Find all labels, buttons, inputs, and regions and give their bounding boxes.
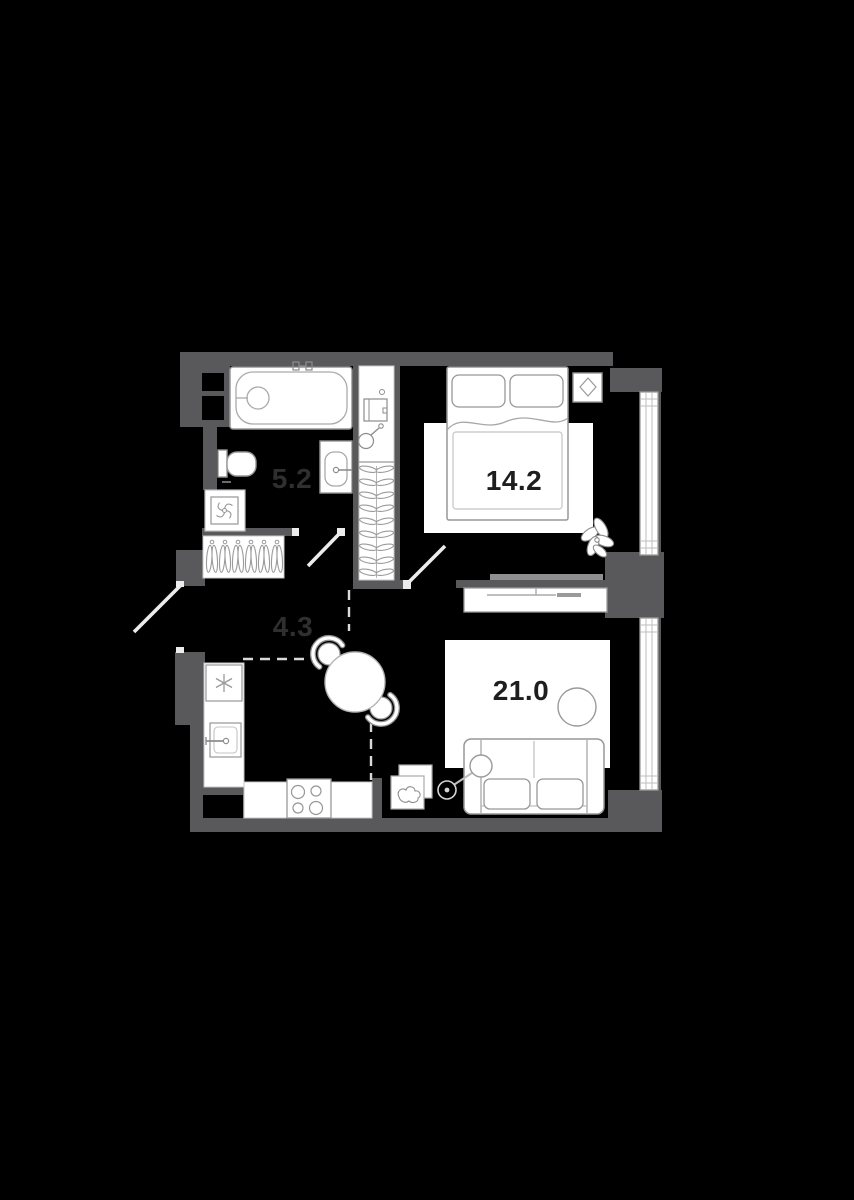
wall-wardrobe-bottom [353, 580, 403, 589]
bathroom-area-label: 5.2 [272, 463, 312, 494]
wardrobe-hangers-icon [359, 465, 394, 578]
shaft-inset [203, 795, 243, 818]
wall-top-band [228, 352, 613, 366]
nightstand-icon [573, 373, 602, 402]
tv-console-icon [464, 588, 607, 612]
shaft-inset [202, 373, 224, 391]
window-bedroom [640, 392, 658, 555]
toilet-icon [218, 450, 256, 482]
bathroom-door-swing-icon [292, 528, 345, 566]
wall-bottom-band [190, 818, 662, 832]
kitchen-sink-icon [206, 723, 241, 757]
floor-plan-image: 5.2 14.2 4.3 21.0 [0, 0, 854, 1200]
living-room [391, 640, 610, 814]
wall-left-low [190, 725, 205, 787]
floor-plan-screenshot: 5.2 14.2 4.3 21.0 [0, 0, 854, 1200]
tv-icon [490, 574, 603, 580]
wall-left-upper [203, 427, 217, 490]
tv-zone [464, 574, 607, 612]
wall-tv-band [456, 580, 607, 588]
coat-rack [203, 536, 284, 578]
wall-bottom-right-block [608, 790, 662, 832]
dining-set [313, 638, 397, 724]
entrance-door-swing-icon [134, 581, 184, 653]
wall-wardrobe-left [353, 366, 359, 589]
bedroom-area-label: 14.2 [486, 465, 543, 496]
coffee-table-icon [558, 688, 596, 726]
window-living [640, 618, 658, 790]
dining-table-icon [325, 652, 385, 712]
double-bed-icon [447, 367, 568, 520]
hallway-area-label: 4.3 [273, 611, 313, 642]
vent-fan-icon [205, 490, 245, 531]
shaft-inset [202, 396, 224, 420]
wall-entry-block [176, 550, 205, 586]
wall-right-pier [605, 552, 664, 618]
wall-top-right-block [610, 368, 662, 392]
wardrobe [359, 366, 395, 580]
bedroom-door-swing-icon [403, 546, 445, 589]
bathtub-icon [230, 362, 352, 429]
wall-wardrobe-right [394, 366, 400, 589]
bedroom [424, 367, 615, 559]
fridge-snowflake-icon [206, 665, 242, 701]
stove-burners-icon [287, 779, 331, 818]
bath-sink-icon [320, 441, 352, 493]
picture-frames-icon [391, 765, 432, 809]
wall-left-mid [175, 652, 205, 725]
wall-kitchen-stub [372, 778, 382, 832]
living-area-label: 21.0 [493, 675, 550, 706]
